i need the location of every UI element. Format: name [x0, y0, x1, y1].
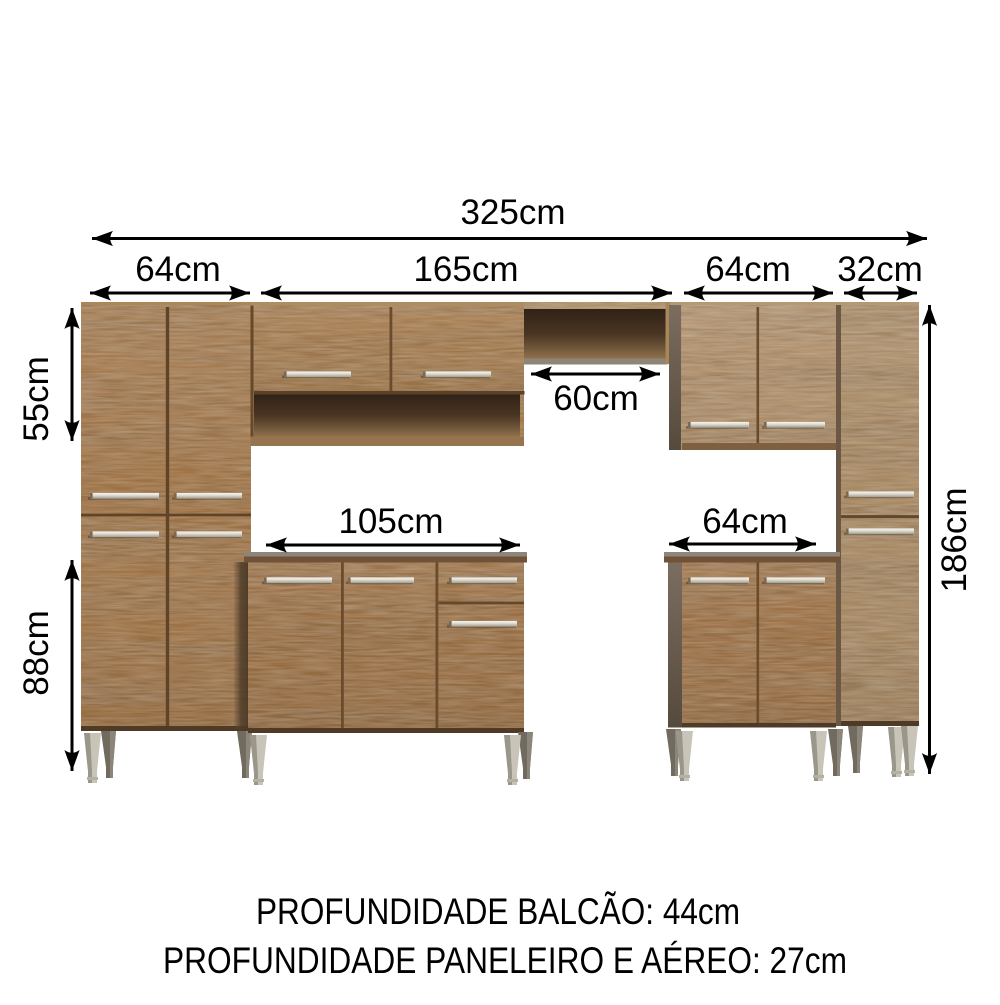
svg-text:PROFUNDIDADE BALCÃO: 44cm: PROFUNDIDADE BALCÃO: 44cm — [256, 891, 740, 932]
svg-text:PROFUNDIDADE PANELEIRO E AÉREO: PROFUNDIDADE PANELEIRO E AÉREO: 27cm — [163, 940, 847, 981]
svg-text:64cm: 64cm — [705, 250, 791, 289]
svg-text:60cm: 60cm — [553, 379, 639, 418]
svg-text:32cm: 32cm — [837, 250, 923, 289]
svg-text:186cm: 186cm — [935, 487, 974, 592]
svg-text:105cm: 105cm — [338, 502, 443, 541]
svg-text:64cm: 64cm — [702, 502, 788, 541]
svg-text:64cm: 64cm — [135, 250, 221, 289]
svg-text:55cm: 55cm — [17, 356, 56, 442]
svg-text:165cm: 165cm — [413, 250, 518, 289]
svg-text:325cm: 325cm — [460, 193, 565, 232]
svg-text:88cm: 88cm — [17, 610, 56, 696]
